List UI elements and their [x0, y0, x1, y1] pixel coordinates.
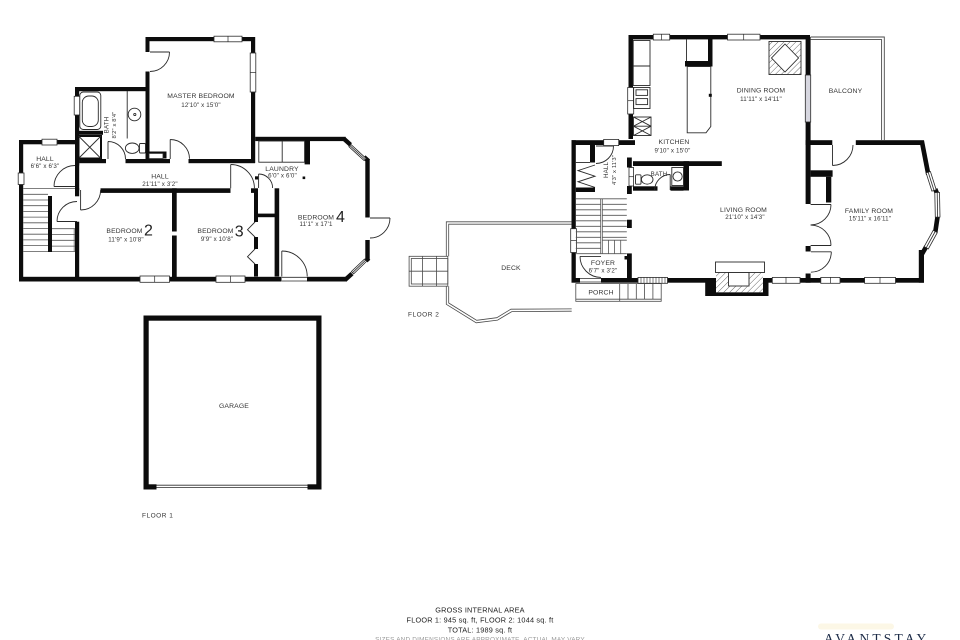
svg-text:BATH: BATH [651, 171, 668, 178]
svg-text:6'0" x 6'0": 6'0" x 6'0" [268, 173, 297, 180]
svg-text:PORCH: PORCH [588, 290, 613, 297]
svg-text:TOTAL: 1989 sq. ft: TOTAL: 1989 sq. ft [448, 626, 513, 635]
svg-text:6'6" x 6'3": 6'6" x 6'3" [31, 163, 60, 170]
svg-text:HALL: HALL [603, 162, 610, 178]
svg-text:GARAGE: GARAGE [219, 403, 249, 410]
svg-text:11'9" x 10'8": 11'9" x 10'8" [108, 237, 143, 244]
svg-text:MASTER BEDROOM: MASTER BEDROOM [167, 93, 235, 100]
svg-text:GROSS INTERNAL AREA: GROSS INTERNAL AREA [435, 606, 525, 615]
svg-text:FLOOR 1: 945 sq. ft, FLOOR 2:: FLOOR 1: 945 sq. ft, FLOOR 2: 1044 sq. f… [407, 616, 554, 625]
svg-text:BALCONY: BALCONY [829, 88, 863, 95]
svg-text:4: 4 [336, 209, 345, 226]
svg-text:HALL: HALL [151, 173, 169, 180]
svg-text:4'3" x 11'3": 4'3" x 11'3" [612, 155, 618, 185]
svg-text:FLOOR 1: FLOOR 1 [142, 513, 173, 520]
svg-text:2: 2 [144, 223, 153, 240]
svg-text:11'11" x 14'11": 11'11" x 14'11" [740, 96, 782, 103]
svg-text:BEDROOM: BEDROOM [106, 228, 142, 235]
svg-text:DINING ROOM: DINING ROOM [737, 88, 786, 95]
svg-text:KITCHEN: KITCHEN [659, 139, 690, 146]
svg-text:9'9" x 10'8": 9'9" x 10'8" [201, 236, 233, 243]
svg-text:21'10" x 14'3": 21'10" x 14'3" [725, 214, 764, 221]
svg-text:DECK: DECK [501, 265, 521, 272]
svg-text:12'10" x 15'0": 12'10" x 15'0" [181, 102, 220, 109]
svg-text:BATH: BATH [104, 117, 111, 134]
svg-text:6'7" x 3'2": 6'7" x 3'2" [589, 268, 618, 275]
svg-text:FOYER: FOYER [591, 260, 615, 267]
svg-text:11'1" x 17'1: 11'1" x 17'1 [299, 221, 332, 228]
svg-text:21'11" x 3'2": 21'11" x 3'2" [142, 181, 177, 188]
svg-text:FLOOR 2: FLOOR 2 [408, 312, 439, 319]
svg-text:8'2" x 8'4": 8'2" x 8'4" [112, 112, 118, 139]
svg-text:BEDROOM: BEDROOM [197, 228, 233, 235]
svg-text:9'10" x 15'0": 9'10" x 15'0" [655, 147, 691, 154]
svg-text:AVANTSTAY: AVANTSTAY [824, 631, 930, 640]
svg-text:SIZES AND DIMENSIONS ARE APPRO: SIZES AND DIMENSIONS ARE APPROXIMATE, AC… [375, 637, 585, 640]
svg-text:FAMILY ROOM: FAMILY ROOM [845, 208, 893, 215]
svg-text:15'11" x 16'11": 15'11" x 16'11" [849, 216, 891, 223]
svg-text:3: 3 [235, 224, 244, 241]
